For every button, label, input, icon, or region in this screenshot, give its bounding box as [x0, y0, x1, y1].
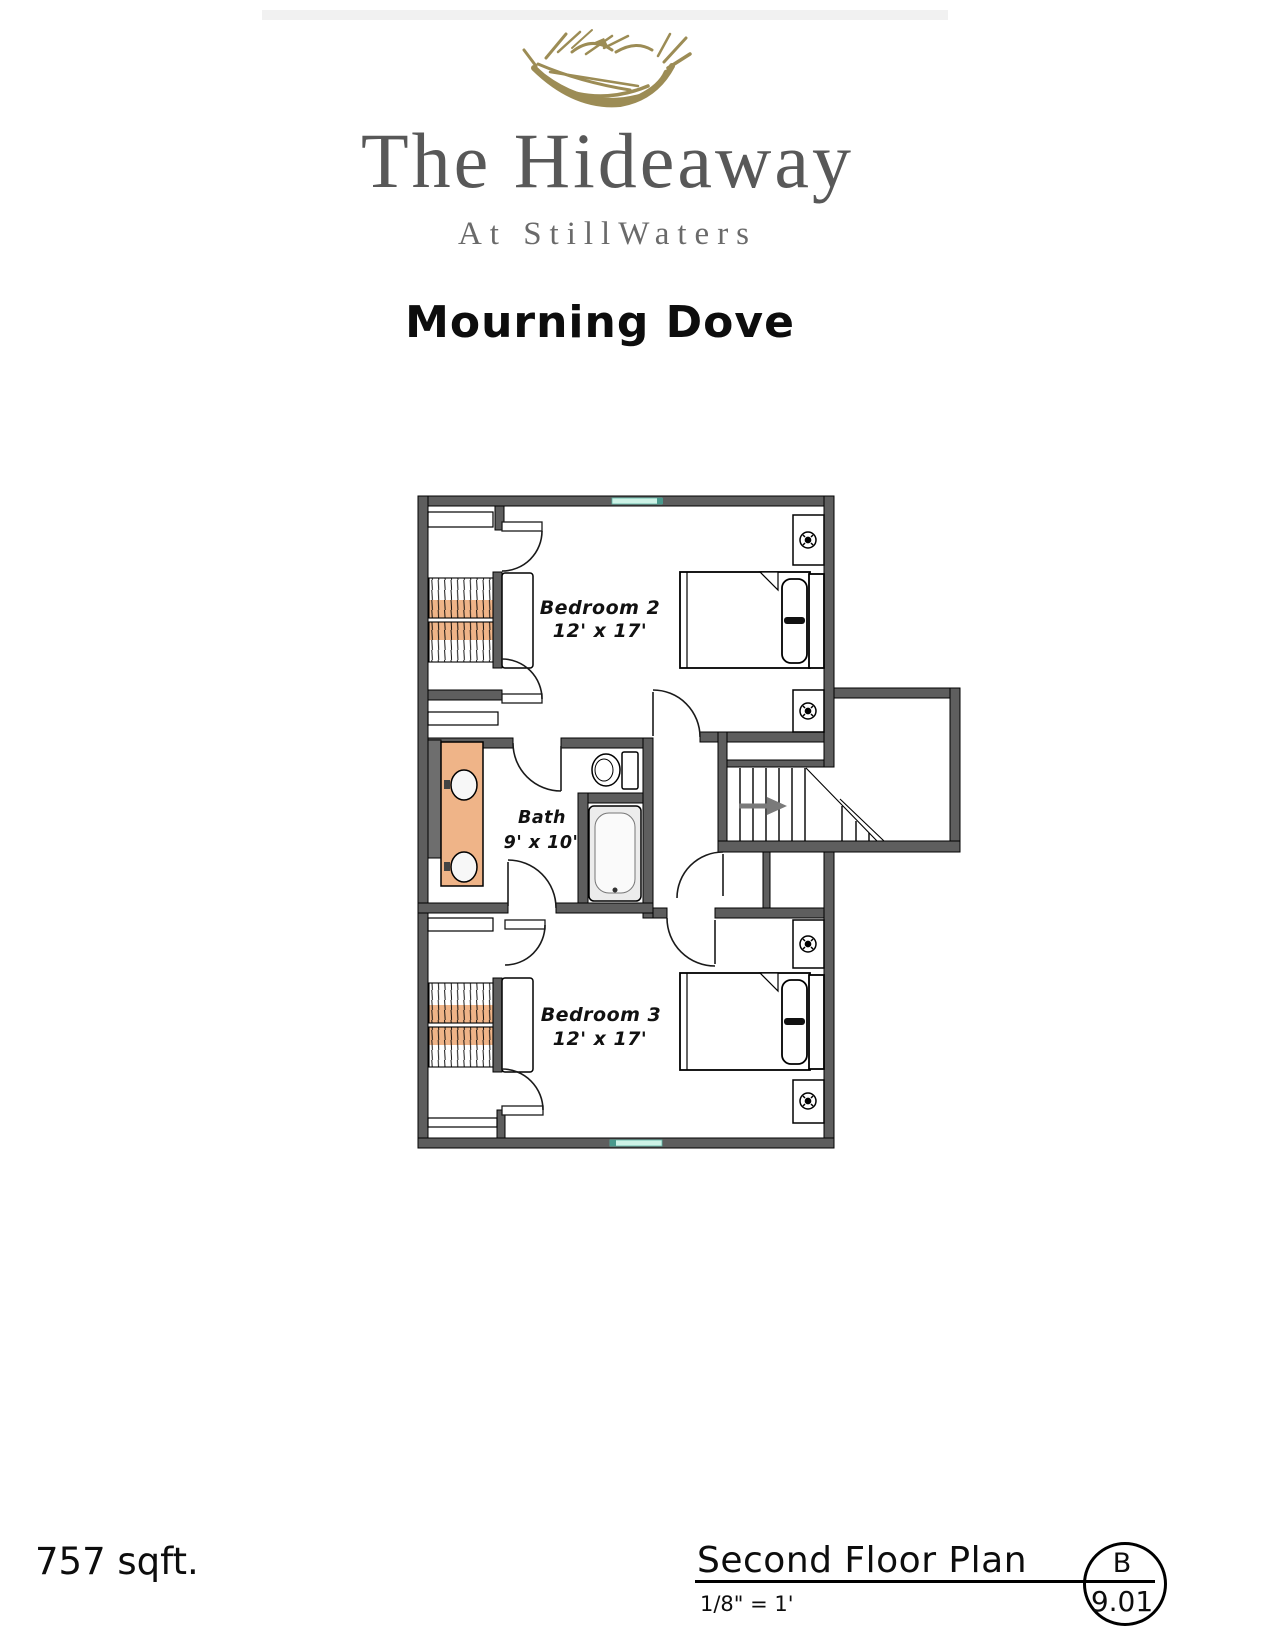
bedroom2-closet-divider [493, 572, 502, 668]
bath-north-door [513, 743, 561, 791]
area-label: 757 sqft. [35, 1540, 199, 1583]
wall-east-lower [824, 852, 834, 1138]
bathtub-icon [589, 806, 641, 901]
scale-label: 1/8" = 1' [700, 1592, 794, 1616]
bedroom2-dresser [502, 573, 533, 668]
bedroom2-entry-door [653, 690, 700, 737]
bedroom3-entry-door [667, 918, 715, 966]
bedroom3-dimensions: 12' x 17' [553, 1028, 648, 1050]
pillow-divider [784, 617, 805, 624]
bath-east-wall [643, 738, 653, 918]
sink-icon [451, 770, 477, 800]
understair-closet-door [677, 852, 723, 898]
headboard [809, 975, 824, 1069]
sheet-number: 9.01 [1083, 1585, 1161, 1618]
faucet-icon [444, 780, 450, 789]
bedroom3-closet-divider [493, 978, 502, 1072]
bedroom2-label: Bedroom 2 [540, 597, 661, 619]
bedroom3-bed [680, 973, 824, 1070]
bedroom3-closet-upper-door [505, 920, 545, 965]
bedroom3-closet-lower-door [502, 1069, 543, 1115]
bath-south-door [508, 860, 556, 908]
bird-nest-logo-icon [520, 24, 695, 116]
closet-shelf [428, 712, 498, 725]
bath-dimensions: 9' x 10' [504, 833, 579, 853]
lamp-icon [800, 703, 816, 719]
brand-title: The Hideaway [0, 116, 1215, 206]
bedroom2-bed [680, 572, 824, 668]
lamp-icon [800, 1093, 816, 1109]
plan-name-title: Mourning Dove [0, 297, 1200, 348]
bedroom2-closet-upper-door [502, 522, 542, 571]
toilet-icon [592, 752, 638, 789]
stair-south-wall [718, 841, 960, 852]
floor-plan-page: The Hideaway At StillWaters Mourning Dov… [0, 0, 1275, 1650]
brand-subtitle: At StillWaters [0, 216, 1215, 253]
bedroom3-dresser [502, 978, 533, 1072]
closet-shelf [428, 512, 493, 527]
headboard [809, 574, 824, 668]
window-south [610, 1140, 662, 1146]
bath-north-wall-right [561, 738, 653, 748]
stair-direction-arrow-icon [739, 797, 787, 815]
bedroom2-dimensions: 12' x 17' [553, 620, 648, 642]
pillow-divider [784, 1018, 805, 1025]
wall-east-upper [824, 496, 834, 767]
closet-shelf [428, 1118, 497, 1127]
stair-bay-north-wall [834, 688, 960, 698]
bath-south-wall-right [556, 903, 653, 913]
bedroom3-closet-rod-icon [429, 983, 493, 1067]
bath-vanity [441, 742, 483, 886]
lamp-icon [800, 532, 816, 548]
floor-plan-drawing: Bedroom 2 12' x 17' Bath 9' x 10' Bedroo… [388, 460, 968, 1160]
drain [613, 888, 618, 893]
tub-alcove-west-wall [578, 793, 588, 903]
top-border-strip [262, 10, 948, 20]
stair-bay-east-wall [950, 688, 960, 852]
sheet-letter: B [1083, 1548, 1161, 1579]
sink-icon [451, 852, 477, 882]
bath-south-wall-left [418, 903, 508, 913]
bedroom2-closet-rod-icon [429, 578, 493, 662]
bedroom2-closet-south-wall [428, 690, 502, 700]
sheet-title: Second Floor Plan [697, 1540, 1027, 1581]
faucet-icon [444, 862, 450, 871]
closet-shelf [428, 918, 493, 931]
stair-west-wall [718, 732, 727, 841]
bedroom3-label: Bedroom 3 [541, 1004, 662, 1026]
bath-label: Bath [518, 808, 566, 828]
vanity-backsplash-wall [428, 740, 441, 858]
stair-rail-wall [727, 760, 824, 767]
lamp-icon [800, 936, 816, 952]
stair-break-line [840, 799, 884, 841]
understair-closet-divider [763, 852, 770, 908]
wall-west [418, 496, 428, 1148]
window-north [612, 498, 662, 504]
hall-south-wall-right [715, 908, 824, 918]
hall-south-wall-left [653, 908, 667, 918]
